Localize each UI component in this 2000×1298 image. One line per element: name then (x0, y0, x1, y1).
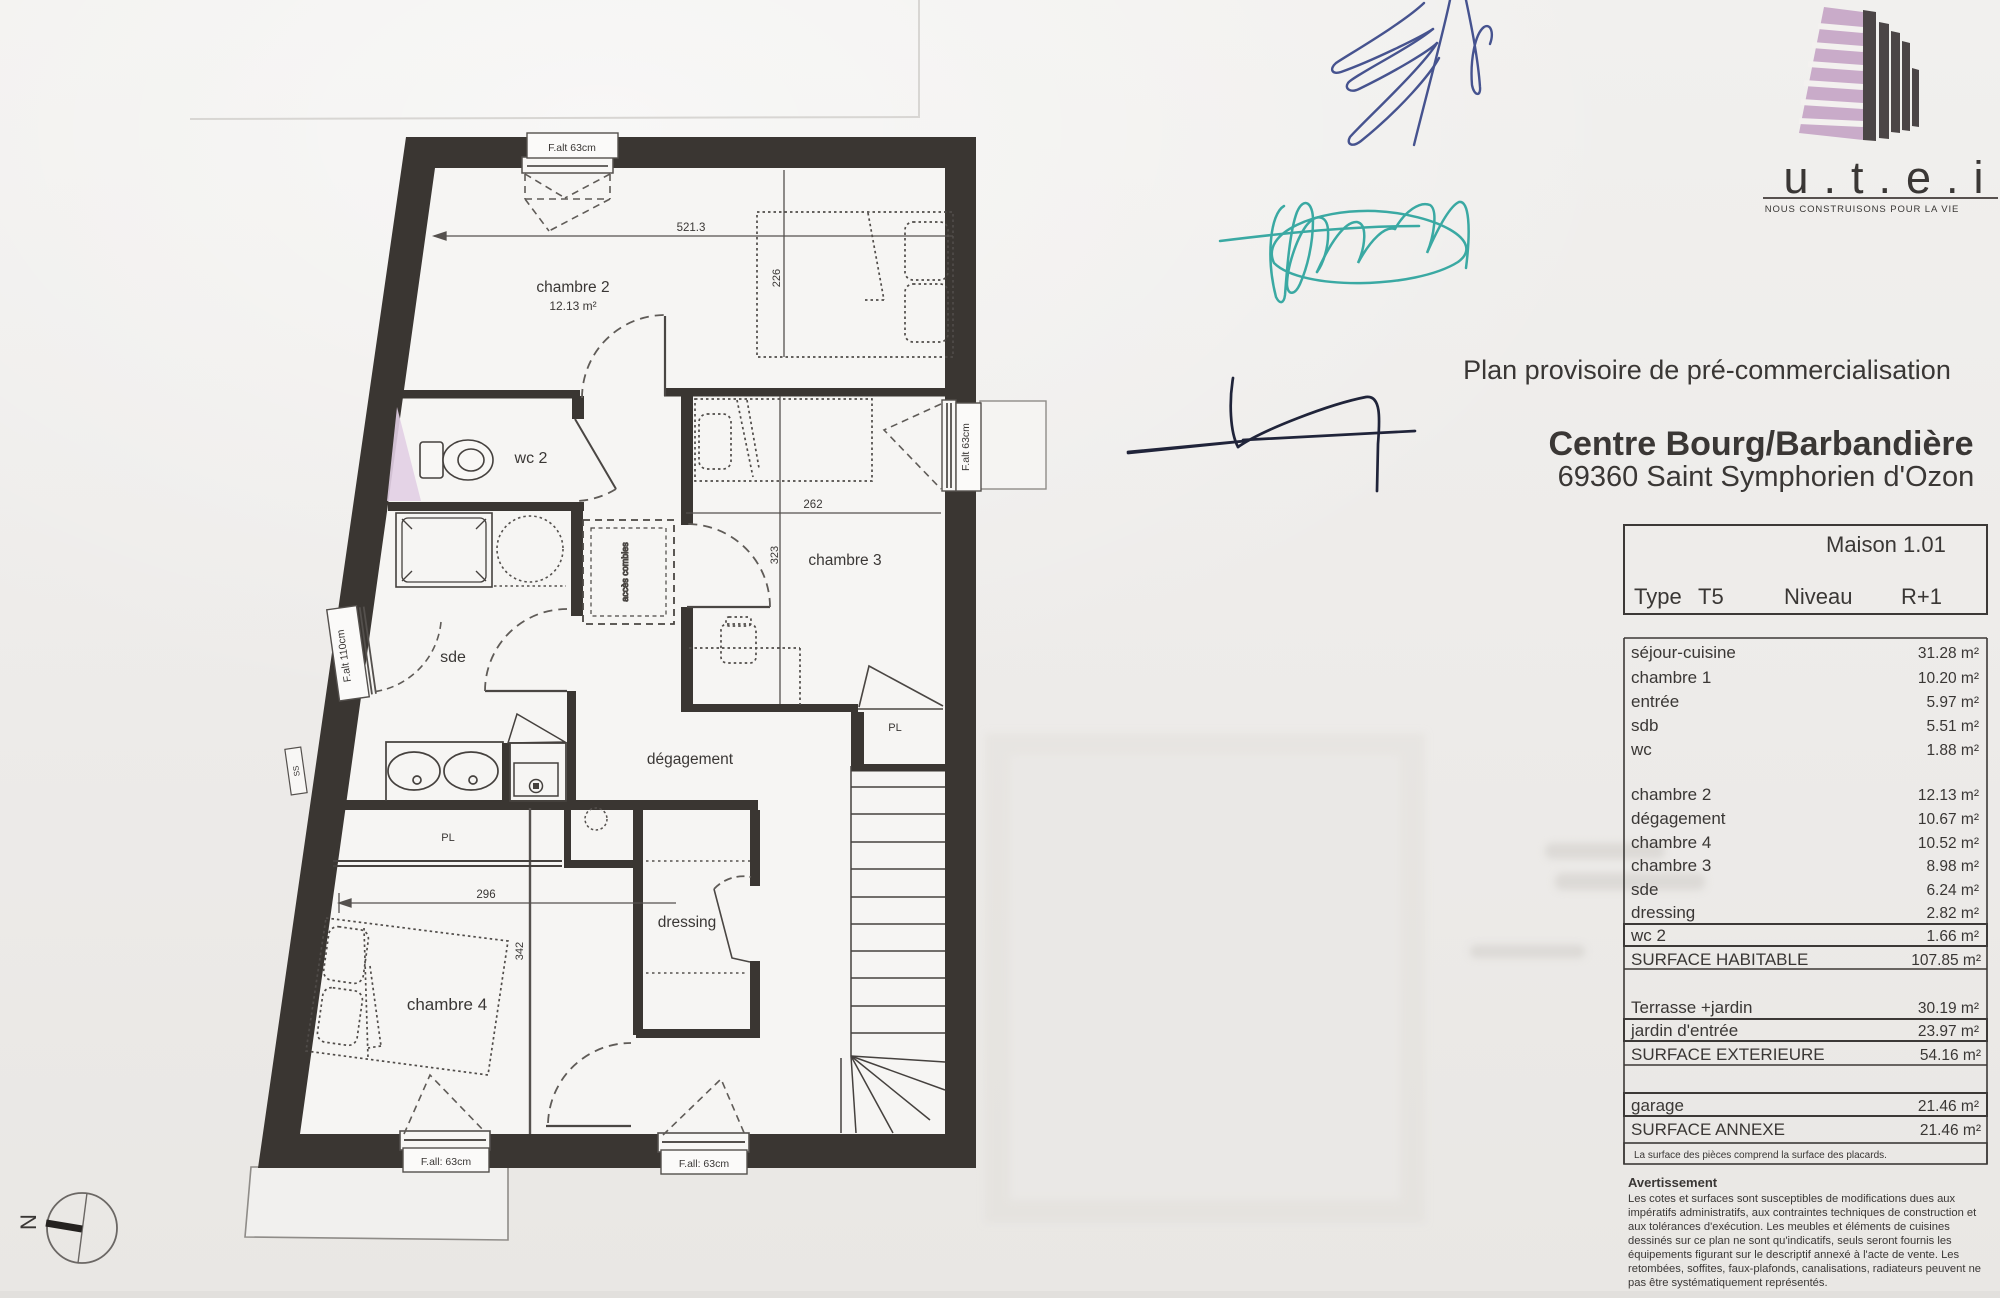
svg-text:F.all: 63cm: F.all: 63cm (421, 1156, 471, 1168)
svg-text:21.46 m²: 21.46 m² (1918, 1098, 1979, 1115)
svg-text:séjour-cuisine: séjour-cuisine (1631, 643, 1736, 662)
svg-text:F.all: 63cm: F.all: 63cm (679, 1158, 729, 1170)
svg-text:10.52 m²: 10.52 m² (1918, 835, 1979, 852)
svg-text:chambre 1: chambre 1 (1631, 668, 1711, 687)
svg-text:F.alt 63cm: F.alt 63cm (960, 423, 972, 471)
svg-text:12.13 m²: 12.13 m² (1918, 787, 1979, 804)
svg-text:296: 296 (476, 889, 495, 901)
svg-text:impératifs administratifs, aux: impératifs administratifs, aux contraint… (1628, 1207, 1977, 1219)
svg-text:R+1: R+1 (1901, 584, 1942, 609)
svg-text:262: 262 (803, 499, 822, 511)
svg-text:54.16 m²: 54.16 m² (1920, 1047, 1981, 1064)
svg-text:chambre 4: chambre 4 (1631, 833, 1711, 852)
svg-text:Les cotes et surfaces sont sus: Les cotes et surfaces sont susceptibles … (1628, 1193, 1956, 1205)
svg-text:accès combles: accès combles (620, 542, 630, 602)
svg-text:342: 342 (514, 942, 526, 960)
svg-text:chambre 4: chambre 4 (407, 995, 487, 1014)
svg-text:sde: sde (440, 649, 466, 666)
svg-text:NOUS CONSTRUISONS POUR LA VIE: NOUS CONSTRUISONS POUR LA VIE (1765, 204, 1960, 215)
svg-text:u.t.e.i: u.t.e.i (1783, 152, 1998, 203)
svg-text:Maison 1.01: Maison 1.01 (1826, 532, 1946, 557)
svg-text:31.28 m²: 31.28 m² (1918, 645, 1979, 662)
svg-text:5.51 m²: 5.51 m² (1926, 718, 1979, 735)
svg-text:323: 323 (769, 546, 781, 564)
svg-text:10.20 m²: 10.20 m² (1918, 670, 1979, 687)
svg-text:dégagement: dégagement (647, 751, 734, 768)
svg-text:dressing: dressing (1631, 903, 1695, 922)
svg-text:226: 226 (771, 269, 783, 287)
svg-text:wc 2: wc 2 (1630, 926, 1666, 945)
svg-text:SS: SS (291, 765, 301, 777)
svg-text:SURFACE ANNEXE: SURFACE ANNEXE (1631, 1120, 1785, 1139)
svg-text:12.13 m²: 12.13 m² (549, 299, 596, 313)
svg-text:wc: wc (1630, 740, 1652, 759)
svg-text:garage: garage (1631, 1096, 1684, 1115)
svg-text:Type: Type (1634, 584, 1682, 609)
svg-text:521.3: 521.3 (677, 222, 706, 234)
svg-text:Plan provisoire de pré-commerc: Plan provisoire de pré-commercialisation (1463, 355, 1951, 385)
svg-text:8.98 m²: 8.98 m² (1926, 858, 1979, 875)
svg-text:23.97 m²: 23.97 m² (1918, 1023, 1979, 1040)
svg-text:6.24 m²: 6.24 m² (1926, 882, 1979, 899)
svg-text:T5: T5 (1698, 584, 1724, 609)
svg-text:dessinés sur ce plan ne sont q: dessinés sur ce plan ne sont qu'indicati… (1628, 1235, 1952, 1247)
svg-text:aux tolérances d'exécution. Le: aux tolérances d'exécution. Les meubles … (1628, 1221, 1950, 1233)
svg-text:pas être systématiquement repr: pas être systématiquement représentés. (1628, 1277, 1828, 1289)
svg-text:2.82 m²: 2.82 m² (1926, 905, 1979, 922)
svg-text:Terrasse +jardin: Terrasse +jardin (1631, 998, 1752, 1017)
svg-text:69360 Saint Symphorien d'Ozon: 69360 Saint Symphorien d'Ozon (1558, 461, 1975, 493)
svg-text:sdb: sdb (1631, 716, 1658, 735)
svg-text:PL: PL (441, 832, 454, 844)
svg-text:wc 2: wc 2 (514, 450, 548, 467)
svg-text:SURFACE EXTERIEURE: SURFACE EXTERIEURE (1631, 1045, 1825, 1064)
svg-text:Avertissement: Avertissement (1628, 1175, 1718, 1190)
svg-text:sde: sde (1631, 880, 1658, 899)
svg-text:chambre 3: chambre 3 (1631, 856, 1711, 875)
svg-text:retombées, soffites, faux-plaf: retombées, soffites, faux-plafonds, cana… (1628, 1263, 1981, 1275)
svg-text:1.66 m²: 1.66 m² (1926, 928, 1979, 945)
svg-text:Centre Bourg/Barbandière: Centre Bourg/Barbandière (1548, 425, 1973, 463)
svg-text:dressing: dressing (658, 914, 717, 931)
svg-text:Niveau: Niveau (1784, 584, 1852, 609)
svg-text:30.19 m²: 30.19 m² (1918, 1000, 1979, 1017)
svg-text:entrée: entrée (1631, 692, 1679, 711)
svg-text:équipements figurant sur le de: équipements figurant sur le descriptif a… (1628, 1249, 1960, 1261)
svg-text:SURFACE HABITABLE: SURFACE HABITABLE (1631, 950, 1808, 969)
svg-text:chambre 3: chambre 3 (808, 552, 881, 569)
svg-text:1.88 m²: 1.88 m² (1926, 742, 1979, 759)
svg-text:jardin d'entrée: jardin d'entrée (1630, 1021, 1738, 1040)
svg-text:dégagement: dégagement (1631, 809, 1726, 828)
svg-text:10.67 m²: 10.67 m² (1918, 811, 1979, 828)
svg-text:La surface des pièces comprend: La surface des pièces comprend la surfac… (1634, 1150, 1887, 1161)
svg-text:PL: PL (888, 722, 901, 734)
svg-text:F.alt 63cm: F.alt 63cm (548, 142, 596, 154)
svg-text:chambre 2: chambre 2 (536, 279, 609, 296)
svg-text:chambre 2: chambre 2 (1631, 785, 1711, 804)
svg-text:107.85 m²: 107.85 m² (1911, 952, 1981, 969)
svg-text:N: N (16, 1214, 41, 1230)
svg-text:5.97 m²: 5.97 m² (1926, 694, 1979, 711)
svg-text:21.46 m²: 21.46 m² (1920, 1122, 1981, 1139)
